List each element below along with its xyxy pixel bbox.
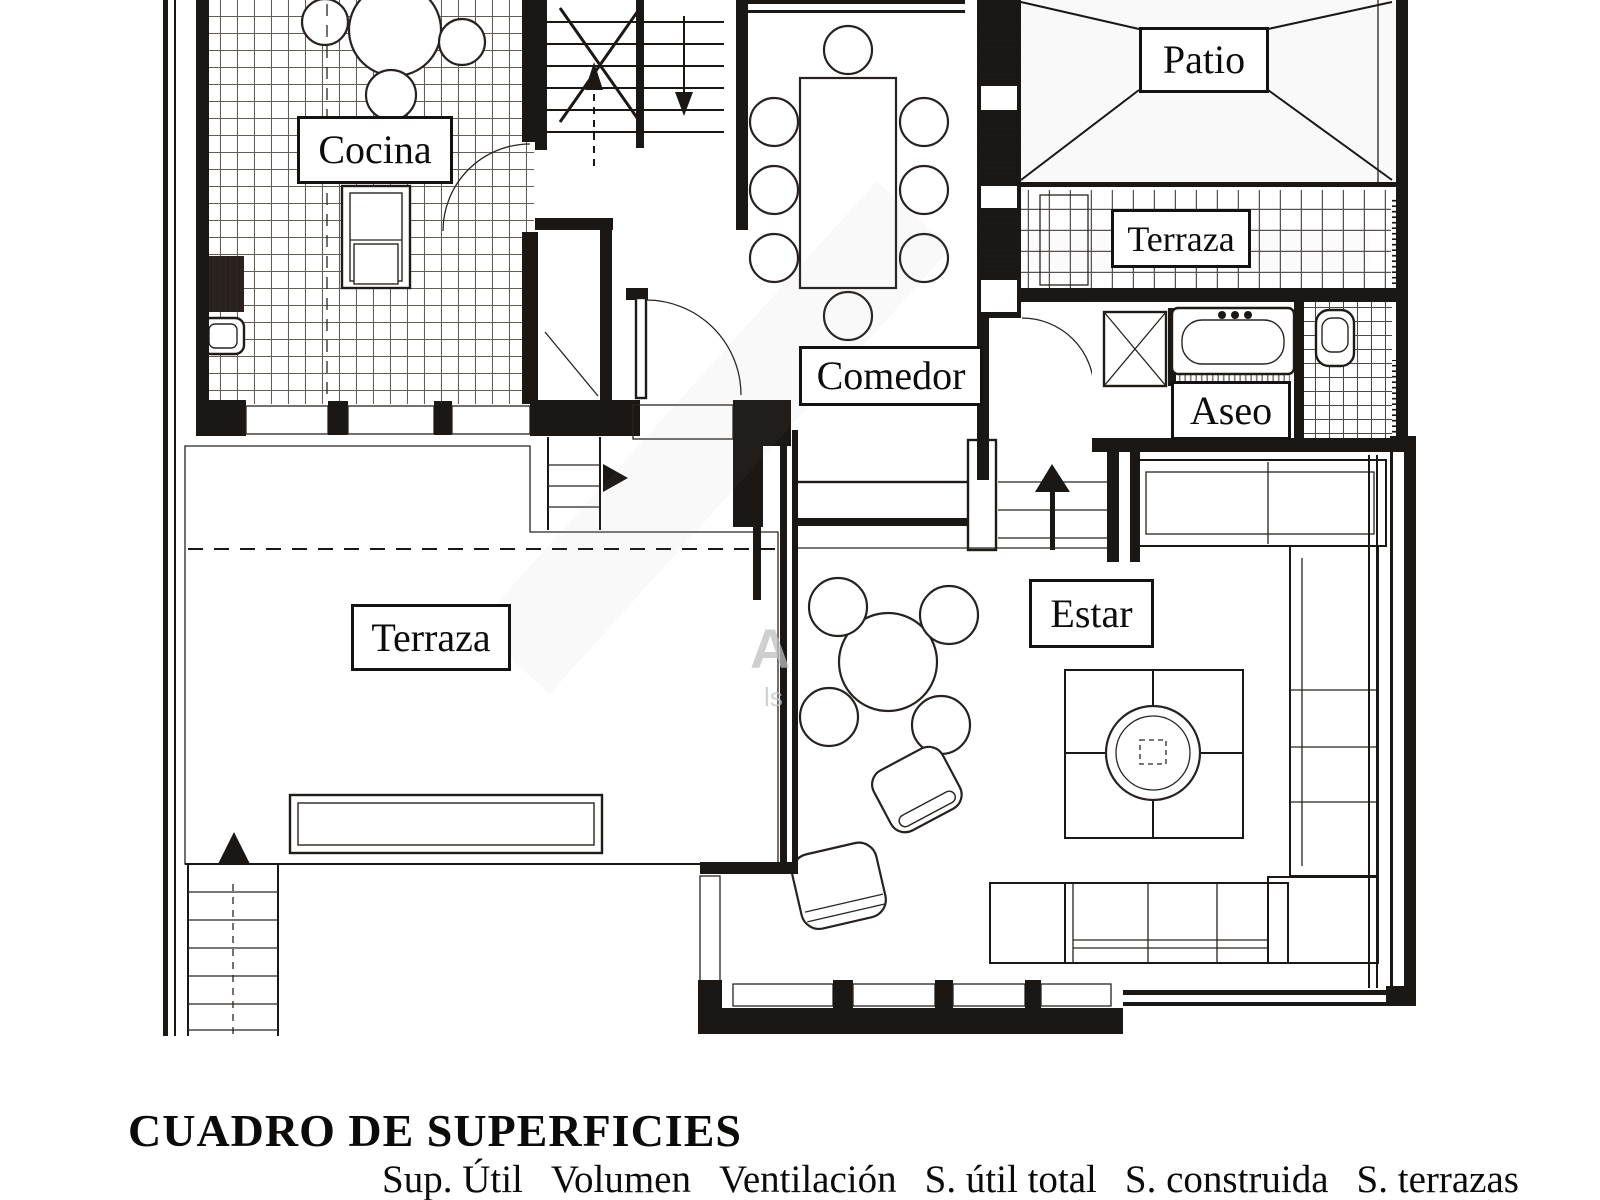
col-s-util-total: S. útil total [925, 1157, 1097, 1200]
door-swing-arc [1022, 318, 1094, 390]
toilet-icon [1316, 310, 1354, 366]
sideboard-icon [795, 482, 970, 526]
kitchen-chair-icon [439, 19, 485, 65]
col-s-construida: S. construida [1125, 1157, 1329, 1200]
chair-icon [912, 696, 970, 754]
bathtub-icon [1172, 308, 1294, 383]
chair-icon [800, 688, 858, 746]
surface-table-title: CUADRO DE SUPERFICIES [128, 1104, 742, 1157]
room-label-cocina: Cocina [297, 116, 453, 184]
terrace-bench-icon [290, 795, 602, 853]
chair-icon [920, 586, 978, 644]
watermark-letter: A [750, 617, 790, 680]
col-s-terrazas: S. terrazas [1357, 1157, 1519, 1200]
kitchen-chair-icon [366, 70, 416, 120]
dining-chair-icon [750, 234, 798, 282]
floor-plan-drawing: A ls [0, 0, 1600, 1040]
armchair-icon [789, 839, 890, 932]
door-leaf [636, 298, 646, 398]
chair-icon [809, 578, 867, 636]
watermark-letter-small: ls [764, 682, 783, 712]
dining-chair-icon [900, 166, 948, 214]
dining-chair-icon [750, 166, 798, 214]
room-label-patio: Patio [1139, 27, 1269, 93]
steps-up-arrow-icon [218, 832, 250, 864]
round-table-group-icon [800, 578, 978, 754]
room-label-terraza-upper: Terraza [1111, 209, 1251, 268]
kitchen-cabinet-icon [342, 186, 410, 288]
stairs-down-arrow-icon [675, 92, 693, 116]
col-sup-util: Sup. Útil [382, 1157, 523, 1200]
room-label-terraza-lower: Terraza [351, 604, 511, 671]
col-volumen: Volumen [551, 1157, 691, 1200]
col-ventilacion: Ventilación [719, 1157, 897, 1200]
shower-icon [1104, 312, 1166, 386]
entry-arrow-icon [1035, 464, 1070, 550]
armchair-icon [866, 741, 967, 838]
understairs-closet-diagonal [545, 332, 598, 396]
dining-chair-icon [900, 98, 948, 146]
dining-chair-icon [824, 26, 872, 74]
staircase-icon [545, 8, 724, 396]
room-label-estar: Estar [1029, 579, 1154, 648]
surface-table-column-headers: Sup. Útil Volumen Ventilación S. útil to… [382, 1157, 1519, 1200]
coffee-table-icon [1065, 670, 1243, 838]
garden-steps-icon [188, 832, 278, 1036]
room-label-comedor: Comedor [799, 346, 983, 406]
room-estar [789, 440, 1386, 963]
kitchen-chair-icon [302, 0, 348, 45]
scanned-floor-plan-page: A ls Cocina Patio Terraza Comedor Aseo E… [0, 0, 1600, 1200]
dining-chair-icon [750, 98, 798, 146]
sofa-sectional-icon [990, 460, 1386, 963]
room-cocina [196, 0, 534, 404]
room-label-aseo: Aseo [1171, 381, 1291, 440]
